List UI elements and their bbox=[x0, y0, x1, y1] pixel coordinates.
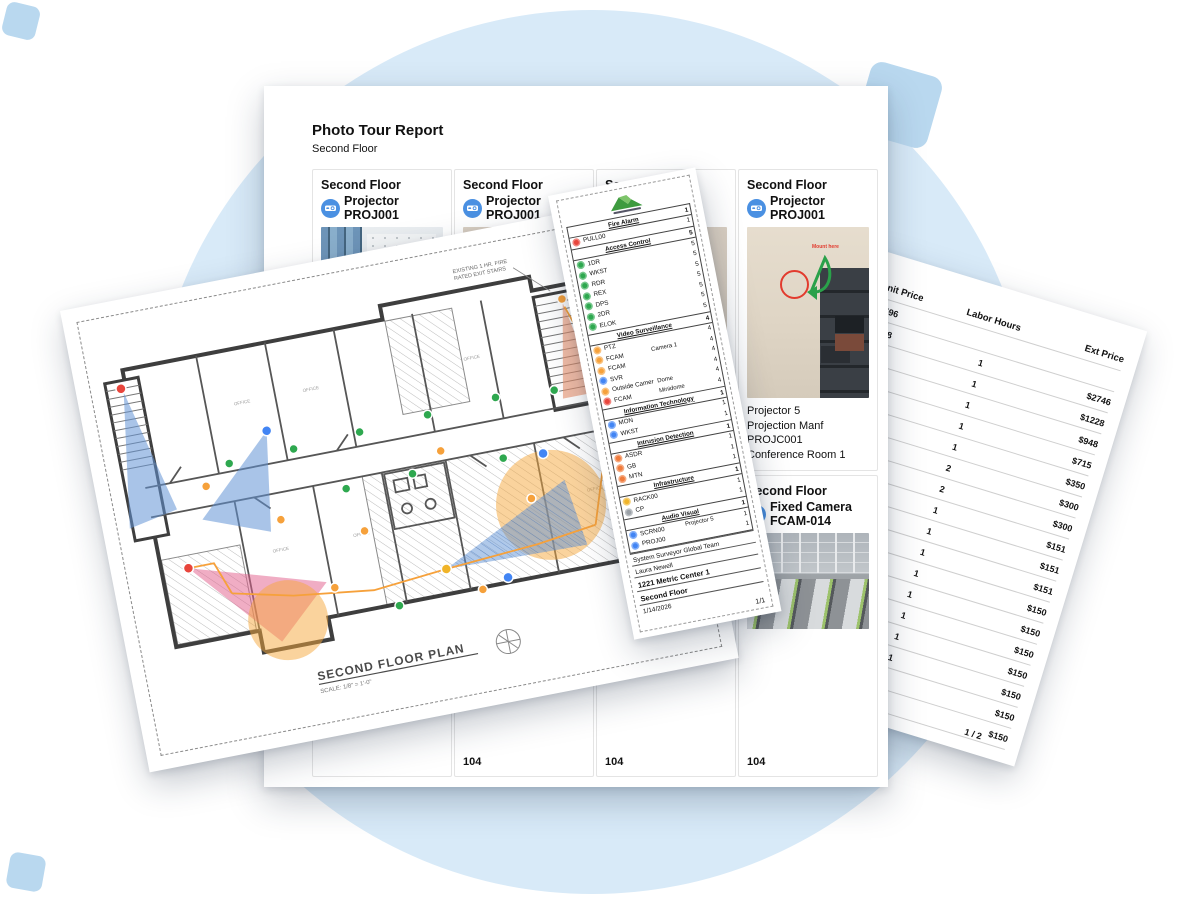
field-location: Conference Room 1 bbox=[747, 448, 869, 463]
card-floor-label: Second Floor bbox=[747, 484, 869, 499]
report-title: Photo Tour Report bbox=[312, 122, 878, 139]
card-device-type: Fixed Camera bbox=[770, 500, 852, 514]
device-type-icon bbox=[584, 302, 593, 311]
card-location-label: 104 bbox=[605, 756, 727, 768]
card-location-label: 104 bbox=[463, 756, 585, 768]
device-type-icon bbox=[599, 376, 608, 385]
item-count: 4 bbox=[701, 335, 714, 344]
svg-text:OFFICE: OFFICE bbox=[272, 546, 289, 554]
device-type-icon bbox=[580, 281, 589, 290]
card-device-type: Projector bbox=[770, 194, 825, 208]
item-count: 5 bbox=[684, 250, 697, 259]
item-count: 1 bbox=[678, 217, 691, 226]
item-count: 1 bbox=[735, 510, 748, 519]
section-count: 1 bbox=[718, 422, 731, 431]
field-device-name: Projector 5 bbox=[747, 404, 869, 419]
section-count: 1 bbox=[726, 466, 739, 475]
section-count: 5 bbox=[680, 229, 693, 238]
item-count: 1 bbox=[730, 487, 743, 496]
device-type-icon bbox=[603, 397, 612, 406]
card-device-id: PROJ001 bbox=[770, 208, 825, 222]
item-count: 4 bbox=[703, 345, 716, 354]
item-count: 1 bbox=[720, 433, 733, 442]
card-device-type: Projector bbox=[486, 194, 541, 208]
item-count: 1 bbox=[737, 520, 750, 529]
device-type-icon bbox=[624, 507, 633, 516]
photo-card: Second Floor Projector PROJ001 bbox=[738, 169, 878, 471]
device-type-icon bbox=[572, 238, 581, 247]
device-type-icon bbox=[576, 261, 585, 270]
device-type-icon bbox=[607, 420, 616, 429]
svg-text:OFFICE: OFFICE bbox=[233, 398, 250, 406]
item-count: 4 bbox=[707, 366, 720, 375]
item-count: 5 bbox=[690, 281, 703, 290]
card-floor-label: Second Floor bbox=[463, 178, 585, 193]
projector-icon bbox=[747, 199, 766, 218]
device-type-icon bbox=[618, 474, 627, 483]
item-count: 5 bbox=[692, 291, 705, 300]
svg-text:OFFICE: OFFICE bbox=[463, 354, 480, 362]
section-count: 1 bbox=[676, 206, 689, 215]
item-count: 4 bbox=[699, 325, 712, 334]
card-device-type: Projector bbox=[344, 194, 399, 208]
annotation-arrow bbox=[799, 254, 833, 304]
card-floor-label: Second Floor bbox=[747, 178, 869, 193]
field-manufacturer: Projection Manf bbox=[747, 419, 869, 434]
item-count: 4 bbox=[705, 356, 718, 365]
item-count: 1 bbox=[722, 443, 735, 452]
card-floor-label: Second Floor bbox=[321, 178, 443, 193]
section-count: 4 bbox=[697, 314, 710, 323]
marketing-composition: { "decor": { "circle_color": "#D8EAF8", … bbox=[0, 0, 1183, 902]
plan-title: SECOND FLOOR PLAN bbox=[316, 641, 466, 683]
svg-text:OFFICE: OFFICE bbox=[302, 385, 319, 393]
section-count: 1 bbox=[733, 499, 746, 508]
device-type-icon bbox=[601, 387, 610, 396]
section-count: 1 bbox=[711, 389, 724, 398]
item-count: 1 bbox=[715, 410, 728, 419]
device-type-icon bbox=[595, 356, 604, 365]
device-type-icon bbox=[609, 430, 618, 439]
card-location-label: 104 bbox=[747, 756, 869, 768]
device-type-icon bbox=[586, 312, 595, 321]
item-count: 5 bbox=[694, 302, 707, 311]
report-subtitle: Second Floor bbox=[312, 143, 878, 155]
projector-icon bbox=[463, 199, 482, 218]
device-type-icon bbox=[622, 497, 631, 506]
device-type-icon bbox=[582, 291, 591, 300]
device-type-icon bbox=[631, 541, 640, 550]
card-device-id: PROJ001 bbox=[344, 208, 399, 222]
item-count: 1 bbox=[728, 476, 741, 485]
compass-icon bbox=[494, 627, 522, 655]
decor-square-top-left bbox=[0, 0, 41, 41]
item-count: 1 bbox=[724, 453, 737, 462]
projector-icon bbox=[321, 199, 340, 218]
item-count: 4 bbox=[709, 376, 722, 385]
device-type-icon bbox=[588, 322, 597, 331]
decor-square-bottom-left bbox=[5, 851, 47, 893]
plan-scale: SCALE: 1/8" = 1'-0" bbox=[320, 679, 372, 695]
item-count: 5 bbox=[686, 260, 699, 269]
item-count: 5 bbox=[682, 240, 695, 249]
item-count: 1 bbox=[713, 399, 726, 408]
item-count: 5 bbox=[688, 271, 701, 280]
device-type-icon bbox=[614, 453, 623, 462]
device-photo bbox=[747, 227, 869, 398]
device-type-icon bbox=[629, 531, 638, 540]
device-type-icon bbox=[597, 366, 606, 375]
card-device-id: FCAM-014 bbox=[770, 514, 852, 528]
annotation-text: Mount here bbox=[812, 244, 839, 250]
device-type-icon bbox=[616, 464, 625, 473]
device-type-icon bbox=[578, 271, 587, 280]
field-model: PROJC001 bbox=[747, 433, 869, 448]
device-type-icon bbox=[593, 345, 602, 354]
